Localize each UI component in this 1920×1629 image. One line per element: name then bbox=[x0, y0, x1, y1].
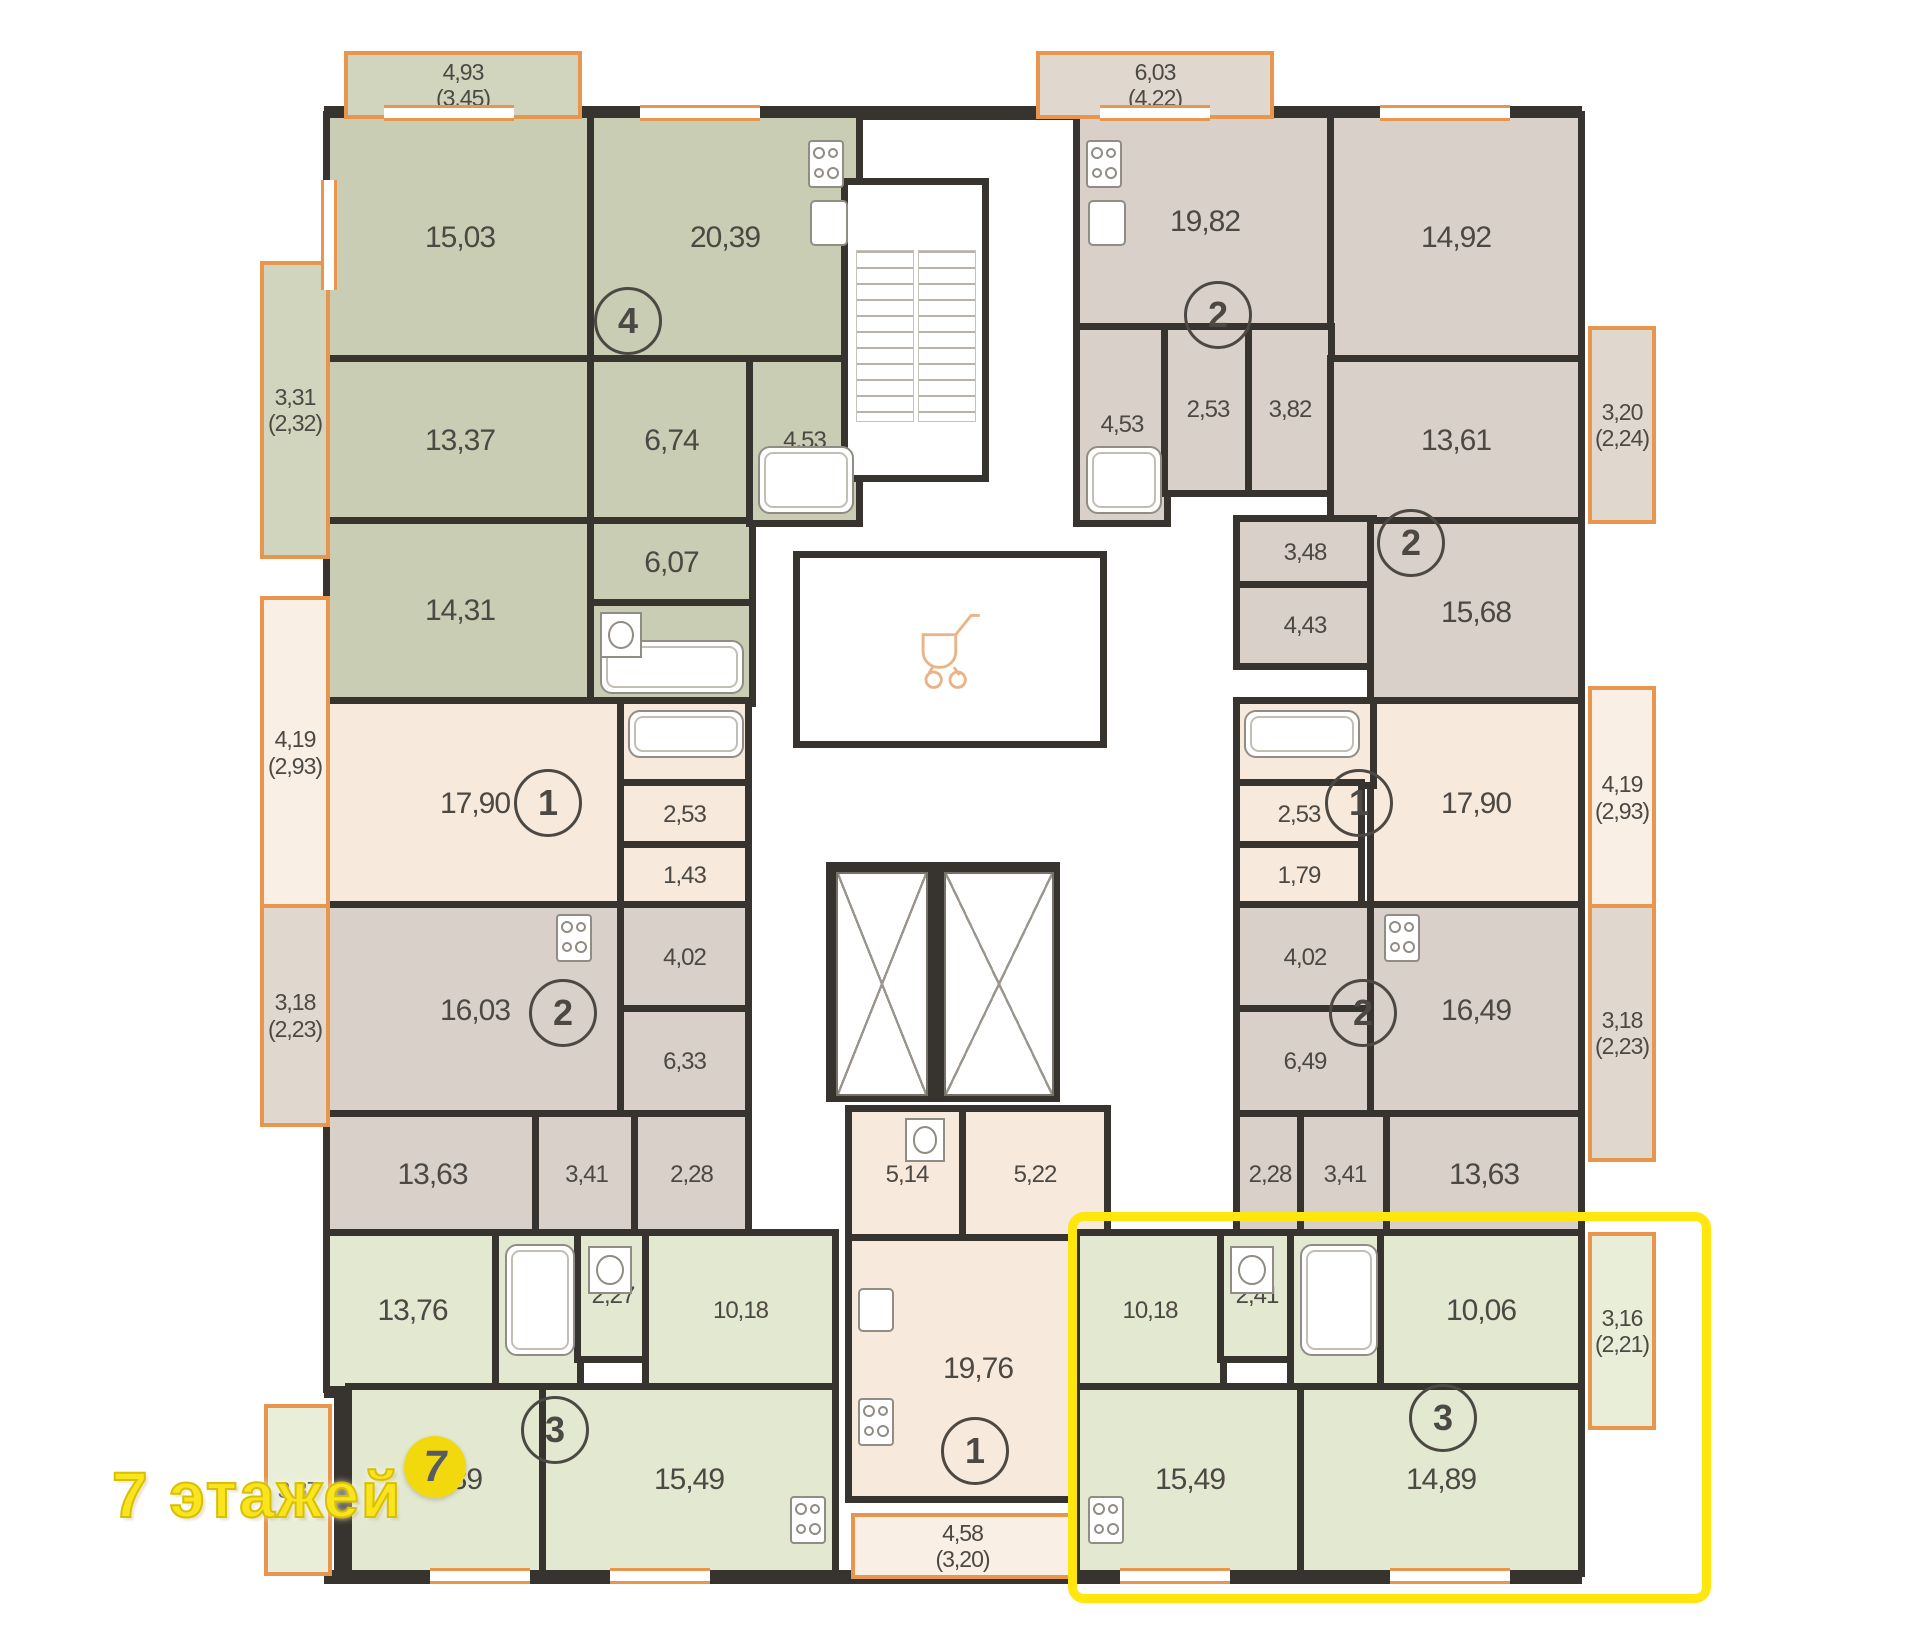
balcony-secondary-label: (2,24) bbox=[1595, 425, 1649, 451]
floors-watermark: 7 этажей bbox=[112, 1458, 402, 1532]
room-area-label: 13,63 bbox=[1449, 1159, 1519, 1191]
room-area-label: 3,41 bbox=[565, 1162, 608, 1187]
bathtub-icon bbox=[1244, 710, 1360, 758]
bathtub-icon bbox=[505, 1244, 575, 1356]
balcony-area-label: 6,03 bbox=[1135, 59, 1176, 85]
sink-icon bbox=[858, 1288, 894, 1332]
washing-machine-icon bbox=[600, 612, 642, 658]
balcony-area-label: 4,58 bbox=[942, 1520, 983, 1546]
room: 2,28 bbox=[638, 1117, 745, 1232]
room-area-label: 19,82 bbox=[1170, 206, 1240, 238]
window-icon bbox=[384, 105, 514, 121]
room-area-label: 15,68 bbox=[1441, 597, 1511, 629]
room-area-label: 13,61 bbox=[1421, 425, 1491, 457]
apartment-number-badge: 1 bbox=[514, 769, 582, 837]
logo-digit: 7 bbox=[419, 1442, 451, 1492]
stroller-icon bbox=[902, 602, 998, 698]
room-area-label: 1,79 bbox=[1278, 863, 1321, 888]
room-area-label: 3,82 bbox=[1269, 397, 1312, 422]
balcony-area-label: 3,18 bbox=[1602, 1007, 1643, 1033]
room-area-label: 2,53 bbox=[1278, 802, 1321, 827]
room-area-label: 17,90 bbox=[440, 788, 510, 820]
stove-icon bbox=[1384, 914, 1422, 964]
room-area-label: 6,74 bbox=[644, 425, 698, 457]
bathtub-icon bbox=[628, 710, 744, 758]
apartment-number-badge: 3 bbox=[521, 1396, 589, 1464]
stove-icon bbox=[1086, 140, 1124, 190]
room: 3,48 bbox=[1240, 522, 1370, 584]
elevator-shaft-icon bbox=[944, 872, 1054, 1096]
room: 2,53 bbox=[1168, 330, 1248, 490]
washing-machine-icon bbox=[905, 1118, 945, 1162]
balcony-secondary-label: (2,23) bbox=[268, 1016, 322, 1042]
balcony: 4,19 (2,93) bbox=[264, 600, 326, 905]
bathtub-icon bbox=[758, 446, 854, 514]
stove-icon bbox=[858, 1398, 894, 1446]
room: 13,37 bbox=[330, 362, 590, 520]
room-area-label: 5,14 bbox=[886, 1162, 929, 1187]
room-area-label: 4,43 bbox=[1284, 613, 1327, 638]
developer-logo: 7 bbox=[404, 1436, 466, 1498]
room-area-label: 14,31 bbox=[425, 595, 495, 627]
stove-icon bbox=[556, 914, 594, 964]
room-area-label: 5,22 bbox=[1014, 1162, 1057, 1187]
room-area-label: 14,92 bbox=[1421, 222, 1491, 254]
balcony-area-label: 4,19 bbox=[1602, 771, 1643, 797]
room-area-label: 15,03 bbox=[425, 222, 495, 254]
balcony-area-label: 4,93 bbox=[443, 59, 484, 85]
room: 14,92 bbox=[1334, 118, 1578, 358]
window-icon bbox=[1100, 105, 1210, 121]
room: 3,41 bbox=[539, 1117, 634, 1232]
washing-machine-icon bbox=[588, 1246, 632, 1294]
apartment-number-badge: 2 bbox=[1184, 281, 1252, 349]
stove-icon bbox=[808, 140, 846, 190]
sink-icon bbox=[810, 200, 848, 246]
room-area-label: 13,37 bbox=[425, 425, 495, 457]
balcony-secondary-label: (2,93) bbox=[268, 753, 322, 779]
room: 14,31 bbox=[330, 524, 590, 697]
room-area-label: 6,49 bbox=[1284, 1049, 1327, 1074]
window-icon bbox=[430, 1568, 530, 1584]
room: 3,82 bbox=[1252, 330, 1328, 490]
balcony: 4,58 (3,20) bbox=[855, 1517, 1070, 1575]
room: 13,76 bbox=[330, 1236, 495, 1386]
room: 2,53 bbox=[624, 786, 745, 844]
room-area-label: 10,18 bbox=[713, 1298, 768, 1323]
apartment-number-badge: 2 bbox=[529, 979, 597, 1047]
balcony-area-label: 3,18 bbox=[275, 989, 316, 1015]
room: 13,61 bbox=[1334, 362, 1578, 520]
balcony-secondary-label: (3,20) bbox=[935, 1546, 989, 1572]
selected-apartment-highlight[interactable] bbox=[1068, 1212, 1711, 1603]
room-area-label: 15,49 bbox=[654, 1464, 724, 1496]
balcony-area-label: 3,20 bbox=[1602, 399, 1643, 425]
balcony: 3,18 (2,23) bbox=[1592, 908, 1652, 1158]
room-area-label: 2,28 bbox=[670, 1162, 713, 1187]
room-area-label: 4,53 bbox=[1101, 412, 1144, 437]
stair-flight-icon bbox=[856, 250, 914, 422]
apartment-number-badge: 1 bbox=[941, 1417, 1009, 1485]
room-area-label: 3,41 bbox=[1324, 1162, 1367, 1187]
apartment-number-badge: 2 bbox=[1377, 509, 1445, 577]
room-area-label: 16,03 bbox=[440, 995, 510, 1027]
room: 6,33 bbox=[624, 1012, 745, 1112]
room: 1,79 bbox=[1240, 848, 1358, 904]
window-icon bbox=[321, 180, 337, 290]
room-area-label: 2,53 bbox=[1187, 397, 1230, 422]
room-area-label: 1,43 bbox=[663, 863, 706, 888]
balcony: 3,31 (2,32) bbox=[264, 265, 326, 555]
balcony-secondary-label: (2,32) bbox=[268, 410, 322, 436]
room: 10,18 bbox=[649, 1236, 832, 1386]
balcony-secondary-label: (2,23) bbox=[1595, 1033, 1649, 1059]
room-area-label: 6,07 bbox=[644, 547, 698, 579]
sink-icon bbox=[1088, 200, 1126, 246]
room-area-label: 13,63 bbox=[397, 1159, 467, 1191]
apartment-number-badge: 4 bbox=[594, 287, 662, 355]
balcony-area-label: 4,19 bbox=[275, 726, 316, 752]
room-area-label: 20,39 bbox=[690, 222, 760, 254]
room-area-label: 13,76 bbox=[377, 1295, 447, 1327]
bathtub-icon bbox=[1086, 446, 1162, 514]
floor-plan: 15,03 20,39 13,37 6,74 14,31 6,07 4,85 4… bbox=[0, 0, 1920, 1629]
room: 13,63 bbox=[330, 1117, 535, 1232]
room: 17,90 bbox=[1374, 704, 1578, 904]
room-area-label: 17,90 bbox=[1441, 788, 1511, 820]
room-area-label: 6,33 bbox=[663, 1049, 706, 1074]
balcony: 3,20 (2,24) bbox=[1592, 330, 1652, 520]
room: 6,74 bbox=[594, 362, 749, 520]
window-icon bbox=[610, 1568, 710, 1584]
apartment-number-badge: 1 bbox=[1325, 769, 1393, 837]
window-icon bbox=[640, 105, 760, 121]
room-area-label: 16,49 bbox=[1441, 995, 1511, 1027]
room-area-label: 4,02 bbox=[1284, 945, 1327, 970]
apartment-number-badge: 2 bbox=[1329, 979, 1397, 1047]
balcony-area-label: 3,31 bbox=[275, 384, 316, 410]
balcony: 3,18 (2,23) bbox=[264, 908, 326, 1123]
pram-room bbox=[800, 558, 1100, 741]
room: 4,02 bbox=[624, 908, 745, 1008]
room: 15,03 bbox=[330, 118, 590, 358]
room: 1,43 bbox=[624, 848, 745, 904]
room: 4,43 bbox=[1240, 588, 1370, 663]
room-area-label: 19,76 bbox=[943, 1353, 1013, 1385]
room-area-label: 3,48 bbox=[1284, 540, 1327, 565]
stair-flight-icon bbox=[918, 250, 976, 422]
balcony: 4,19 (2,93) bbox=[1592, 690, 1652, 905]
balcony-secondary-label: (2,93) bbox=[1595, 798, 1649, 824]
elevator-shaft-icon bbox=[836, 872, 928, 1096]
room-area-label: 2,53 bbox=[663, 802, 706, 827]
window-icon bbox=[1380, 105, 1510, 121]
room: 6,07 bbox=[594, 524, 749, 602]
stove-icon bbox=[790, 1496, 826, 1544]
room-area-label: 4,02 bbox=[663, 945, 706, 970]
room-area-label: 2,28 bbox=[1249, 1162, 1292, 1187]
